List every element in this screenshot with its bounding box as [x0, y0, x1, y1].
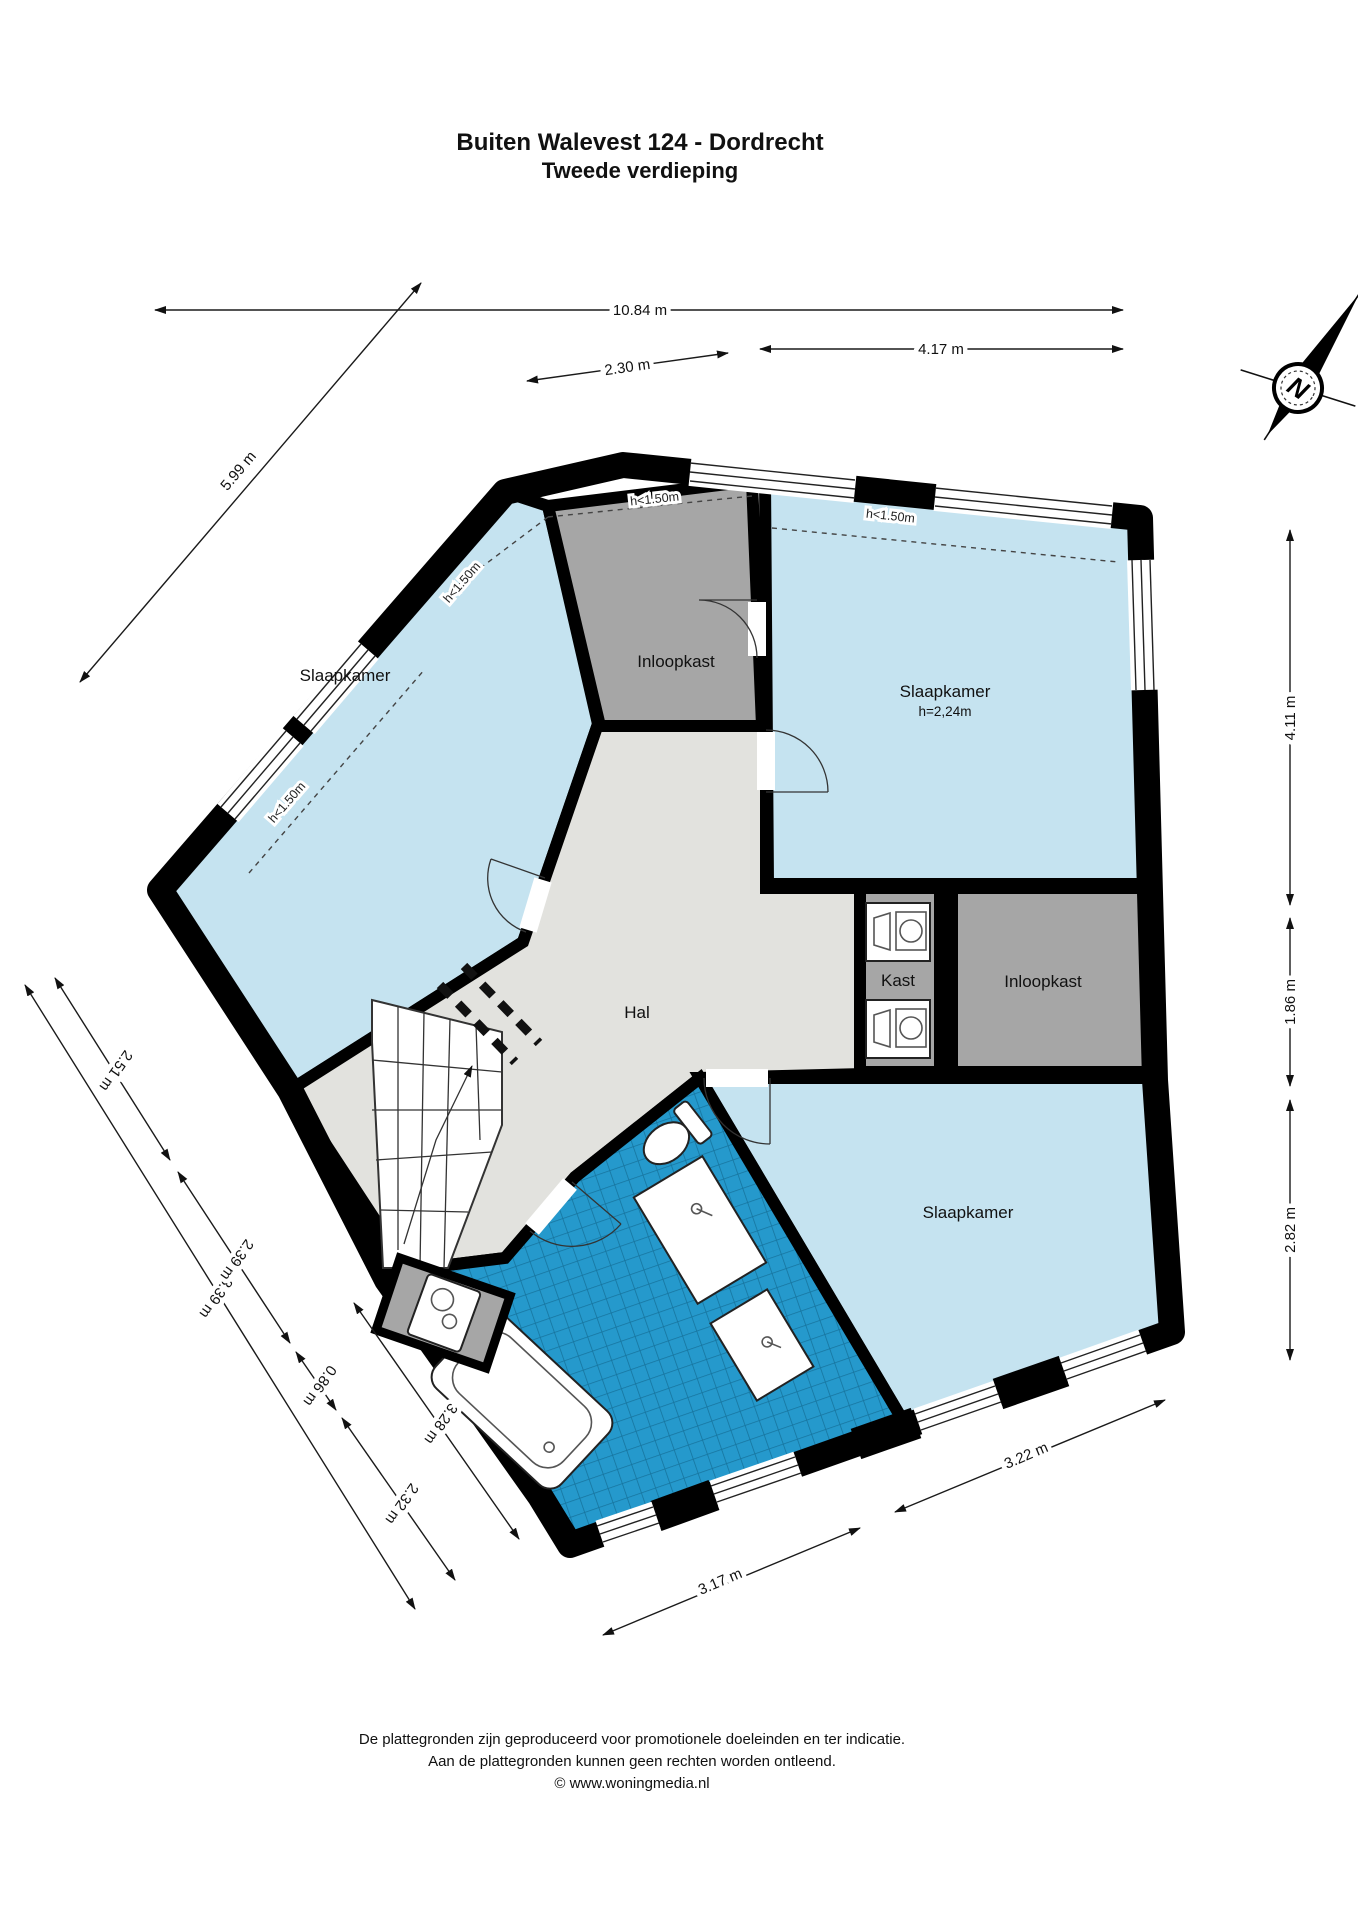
label-slaapkamer-left: Slaapkamer — [300, 666, 391, 685]
floorplan-canvas: Buiten Walevest 124 - Dordrecht Tweede v… — [0, 0, 1358, 1920]
dim-bottom-left: 3.17 m — [696, 1565, 745, 1599]
label-slaapkamer-top-right: Slaapkamer — [900, 682, 991, 701]
dim-top-small: 2.30 m — [603, 356, 651, 379]
dim-bottom-right: 3.22 m — [1002, 1439, 1051, 1473]
dim-left-seg3: 0.86 m — [300, 1362, 340, 1409]
page-subtitle: Tweede verdieping — [542, 158, 738, 183]
dim-left-seg2: 2.39 m — [217, 1236, 257, 1283]
dim-left-seg1: 2.51 m — [96, 1047, 136, 1094]
label-hal: Hal — [624, 1003, 650, 1022]
compass-icon: N — [1216, 262, 1358, 471]
label-inloopkast-top: Inloopkast — [637, 652, 715, 671]
window-right — [1132, 560, 1154, 690]
dim-right-middle: 1.86 m — [1282, 979, 1299, 1025]
dim-upper-left-wall: 5.99 m — [217, 448, 260, 494]
label-slaapkamer-bottom-right: Slaapkamer — [923, 1203, 1014, 1222]
page-title: Buiten Walevest 124 - Dordrecht — [456, 129, 823, 156]
dim-right-upper: 4.11 m — [1282, 696, 1299, 741]
footer-line2: Aan de plattegronden kunnen geen rechten… — [428, 1753, 836, 1770]
label-inloopkast-right: Inloopkast — [1004, 972, 1082, 991]
footer-line3: © www.woningmedia.nl — [554, 1775, 709, 1792]
dim-left-seg4: 2.32 m — [382, 1480, 422, 1527]
floorplan-page: Buiten Walevest 124 - Dordrecht Tweede v… — [0, 0, 1358, 1920]
dim-total-width: 10.84 m — [613, 302, 667, 319]
label-slaapkamer-height: h=2,24m — [919, 704, 972, 719]
kast-lower-box — [866, 1000, 930, 1058]
kast-upper-box — [866, 903, 930, 961]
footer-line1: De plattegronden zijn geproduceerd voor … — [359, 1731, 905, 1748]
label-kast: Kast — [881, 971, 915, 990]
dim-top-right: 4.17 m — [918, 341, 964, 358]
dim-right-lower: 2.82 m — [1282, 1207, 1299, 1253]
